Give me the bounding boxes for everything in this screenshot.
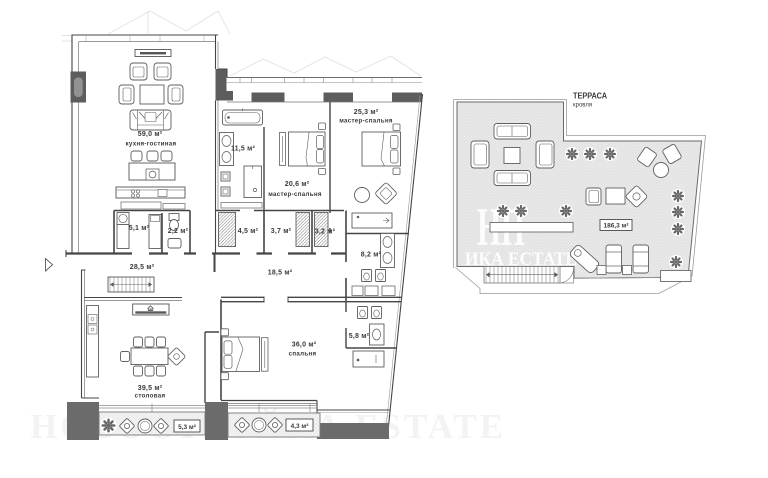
svg-text:мастер-спальня: мастер-спальня — [339, 118, 393, 125]
svg-text:3,7 м²: 3,7 м² — [271, 228, 292, 235]
svg-text:11,5 м²: 11,5 м² — [231, 146, 256, 153]
svg-text:3,2 м²: 3,2 м² — [315, 229, 336, 236]
svg-text:спальня: спальня — [289, 351, 317, 358]
svg-text:5,3 м²: 5,3 м² — [178, 424, 197, 431]
svg-text:36,0 м²: 36,0 м² — [292, 342, 317, 349]
svg-text:ТЕРРАСА: ТЕРРАСА — [573, 92, 607, 101]
svg-text:5,1 м²: 5,1 м² — [129, 225, 150, 232]
svg-text:мастер-спальня: мастер-спальня — [268, 191, 322, 198]
svg-text:5,8 м²: 5,8 м² — [349, 333, 370, 340]
svg-text:2,2 м²: 2,2 м² — [168, 228, 189, 235]
svg-text:59,0 м²: 59,0 м² — [138, 131, 163, 138]
svg-text:39,5 м²: 39,5 м² — [138, 385, 163, 392]
svg-text:28,5 м²: 28,5 м² — [130, 264, 155, 271]
svg-text:8,2 м²: 8,2 м² — [361, 252, 382, 259]
svg-text:18,5 м²: 18,5 м² — [268, 270, 293, 277]
svg-text:4,3 м²: 4,3 м² — [291, 423, 310, 430]
svg-text:4,5 м²: 4,5 м² — [238, 228, 259, 235]
svg-text:кровля: кровля — [573, 103, 592, 109]
svg-text:кухня-гостиная: кухня-гостиная — [126, 141, 177, 148]
svg-text:столовая: столовая — [135, 393, 166, 400]
svg-text:20,6 м²: 20,6 м² — [285, 181, 310, 188]
svg-text:186,3 м²: 186,3 м² — [603, 223, 629, 230]
svg-text:25,3 м²: 25,3 м² — [354, 109, 379, 116]
